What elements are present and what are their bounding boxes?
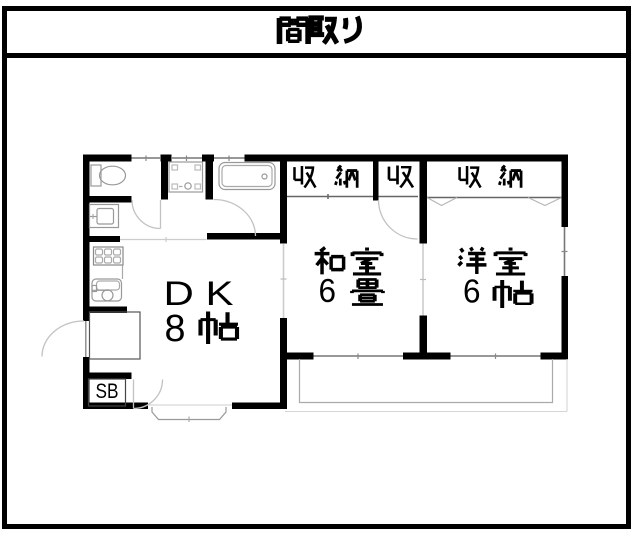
svg-text:8: 8 <box>165 308 186 350</box>
svg-text:6: 6 <box>319 272 337 309</box>
svg-text:SB: SB <box>96 380 119 403</box>
svg-text:6: 6 <box>463 273 481 310</box>
